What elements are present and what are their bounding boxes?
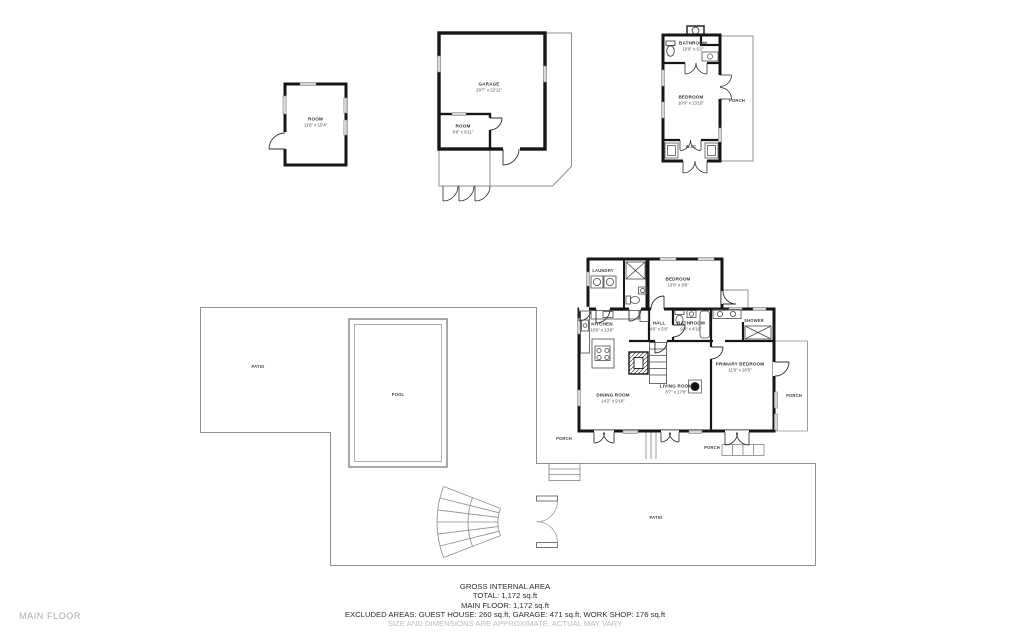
bathroom-label: BATHROOM 9'9" x 4'10" <box>677 321 705 332</box>
room-name: POOL <box>392 392 404 398</box>
patio-doors <box>537 496 558 548</box>
room-name: PORCH <box>729 98 745 104</box>
room-dims: 8'7" x 17'8" <box>665 389 686 394</box>
room-name: W.I.C <box>686 144 697 150</box>
garage-structure <box>437 33 571 201</box>
guest-wic-label: W.I.C <box>686 144 697 150</box>
guest-porch-label: PORCH <box>729 98 745 104</box>
shed-doors <box>443 186 490 201</box>
living-room-label: LIVING ROOM 8'7" x 17'8" <box>660 384 693 395</box>
garage-room-label: ROOM 9'8" x 6'11" <box>453 124 474 135</box>
shower-label: SHOWER <box>744 318 764 324</box>
room-dims: 9'9" x 4'10" <box>680 326 701 331</box>
total-area: TOTAL: 1,172 sq.ft <box>0 591 1010 600</box>
room-name: PATIO <box>650 515 663 521</box>
room-dims: 9'8" x 6'11" <box>453 129 474 134</box>
garage-label: GARAGE 20'7" x 22'11" <box>476 82 502 93</box>
room-name: PORCH <box>556 436 572 442</box>
room-dims: 11'6" x 15'4" <box>304 122 327 127</box>
gross-internal-area-title: GROSS INTERNAL AREA <box>0 582 1010 591</box>
dining-room-label: DINING ROOM 14'2" x 9'10" <box>596 393 629 404</box>
room-name: PATIO <box>252 364 265 370</box>
room-dims: 10'9" x 5'2" <box>682 46 703 51</box>
room-dims: 14'2" x 9'10" <box>601 398 625 403</box>
floorplan-page: ROOM 11'6" x 15'4" GARAGE 20'7" x 22'11"… <box>0 0 1024 640</box>
room-name: SHOWER <box>744 318 764 324</box>
floorplan-drawing <box>0 0 1024 640</box>
patio-left-label: PATIO <box>252 364 265 370</box>
laundry-label: LAUNDRY <box>592 268 613 274</box>
room-name: LAUNDRY <box>592 268 613 274</box>
porch-bottom-label: PORCH <box>704 445 720 451</box>
disclaimer: SIZE AND DIMENSIONS ARE APPROXIMATE, ACT… <box>0 619 1010 628</box>
room-name: PORCH <box>786 393 802 399</box>
room-dims: 13'0" x 9'6" <box>667 282 688 287</box>
bedroom-label: BEDROOM 13'0" x 9'6" <box>665 277 690 288</box>
porch-right-label: PORCH <box>786 393 802 399</box>
room-dims: 10'0" x 13'10" <box>678 100 704 105</box>
room-name: PORCH <box>704 445 720 451</box>
guest-bathroom-label: BATHROOM 10'9" x 5'2" <box>679 41 707 52</box>
pool-label: POOL <box>392 392 404 398</box>
porch-left-label: PORCH <box>556 436 572 442</box>
kitchen-label: KITCHEN 10'6" x 13'6" <box>590 322 614 333</box>
main-floor-area: MAIN FLOOR: 1,172 sq.ft <box>0 601 1010 610</box>
patio-bottom-label: PATIO <box>650 515 663 521</box>
guest-bedroom-label: BEDROOM 10'0" x 13'10" <box>678 95 704 106</box>
room-dims: 10'6" x 13'6" <box>590 327 614 332</box>
fireplace-opening <box>634 358 643 369</box>
hall-label: HALL 4'0" x 5'6" <box>650 321 669 332</box>
room-dims: 11'9" x 20'5" <box>728 367 751 372</box>
floor-name-tag: MAIN FLOOR <box>19 611 81 621</box>
room-dims: 4'0" x 5'6" <box>650 326 669 331</box>
workshop-label: ROOM 11'6" x 15'4" <box>304 117 327 128</box>
stairs-fan <box>437 487 501 558</box>
primary-bedroom-label: PRIMARY BEDROOM 11'9" x 20'5" <box>716 362 764 373</box>
area-summary: GROSS INTERNAL AREA TOTAL: 1,172 sq.ft M… <box>0 582 1010 628</box>
excluded-areas: EXCLUDED AREAS: GUEST HOUSE: 260 sq.ft, … <box>0 610 1010 619</box>
room-dims: 20'7" x 22'11" <box>476 87 502 92</box>
door-gap <box>283 132 288 149</box>
